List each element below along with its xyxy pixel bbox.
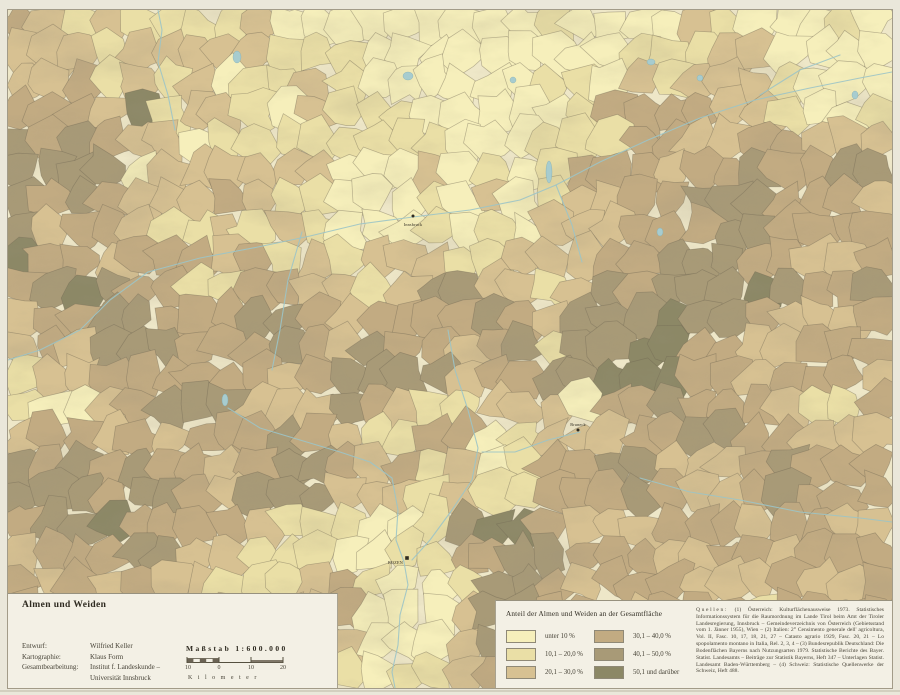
scale-tick: 20 <box>280 665 286 671</box>
legend-label: 30,1 – 40,0 % <box>633 633 671 640</box>
lake <box>403 72 413 80</box>
lake <box>697 75 703 81</box>
lake <box>852 91 858 99</box>
legend-item: unter 10 % <box>506 630 596 643</box>
legend-item: 30,1 – 40,0 % <box>594 630 684 643</box>
bruneck-marker <box>577 429 580 432</box>
sources-block: Quellen: (1) Österreich: Kulturflächenau… <box>696 607 884 675</box>
legend-item: 50,1 und darüber <box>594 666 684 679</box>
credit-label: Kartographie: <box>22 652 90 663</box>
legend-swatch-class5 <box>594 648 624 661</box>
title-credits-panel: Almen und Weiden Entwurf: Wilfried Kelle… <box>8 593 338 689</box>
legend-title: Anteil der Almen und Weiden an der Gesam… <box>506 610 662 618</box>
lake <box>657 228 663 236</box>
legend-item: 40,1 – 50,0 % <box>594 648 684 661</box>
credit-value: Universität Innsbruck <box>90 673 160 684</box>
legend-swatch-class6 <box>594 666 624 679</box>
credit-value: Klaus Form <box>90 652 160 663</box>
bozen-marker <box>405 556 409 560</box>
legend-swatch-class2 <box>506 648 536 661</box>
map-area: InnsbruckBOZENBruneck <box>8 10 892 688</box>
lake <box>546 161 552 183</box>
legend-item: 20,1 – 30,0 % <box>506 666 596 679</box>
bozen-label: BOZEN <box>388 560 403 565</box>
credits-block: Entwurf: Wilfried Keller Kartographie: K… <box>22 641 160 683</box>
legend-swatch-class1 <box>506 630 536 643</box>
map-title: Almen und Weiden <box>22 600 106 610</box>
innsbruck-label: Innsbruck <box>404 222 423 227</box>
credit-label: Entwurf: <box>22 641 90 652</box>
legend-sources-panel: Anteil der Almen und Weiden an der Gesam… <box>495 600 893 689</box>
legend-label: 50,1 und darüber <box>633 669 679 676</box>
credit-label: Gesamtbearbeitung: <box>22 662 90 673</box>
legend-label: 10,1 – 20,0 % <box>545 651 583 658</box>
legend-swatch-class4 <box>594 630 624 643</box>
scale-tick: 0 <box>218 665 221 671</box>
legend-swatch-class3 <box>506 666 536 679</box>
sources-heading: Quellen: <box>696 607 728 613</box>
scale-bar <box>186 656 286 664</box>
scale-block: Maßstab 1:600.000 10 0 10 20 Kilometer <box>186 644 298 686</box>
map-svg: InnsbruckBOZENBruneck <box>8 10 892 688</box>
scale-tick: 10 <box>248 665 254 671</box>
credit-label <box>22 673 90 684</box>
sources-text: (1) Österreich: Kulturflächenausweise 19… <box>696 607 884 674</box>
credit-value: Institut f. Landeskunde – <box>90 662 160 673</box>
lake <box>222 394 228 406</box>
credit-value: Wilfried Keller <box>90 641 160 652</box>
bruneck-label: Bruneck <box>570 422 586 427</box>
scale-unit: Kilometer <box>188 675 262 681</box>
legend-item: 10,1 – 20,0 % <box>506 648 596 661</box>
legend-label: unter 10 % <box>545 633 575 640</box>
scale-label: Maßstab 1:600.000 <box>186 644 298 653</box>
scale-tick: 10 <box>185 665 191 671</box>
lake <box>647 59 655 65</box>
scale-numbers: 10 0 10 20 <box>186 665 286 673</box>
hillshade-overlay <box>8 10 892 688</box>
page-edge-shadow <box>0 690 900 692</box>
lake <box>510 77 516 83</box>
legend-label: 40,1 – 50,0 % <box>633 651 671 658</box>
lake <box>233 51 241 63</box>
innsbruck-marker <box>412 215 415 218</box>
legend-label: 20,1 – 30,0 % <box>545 669 583 676</box>
